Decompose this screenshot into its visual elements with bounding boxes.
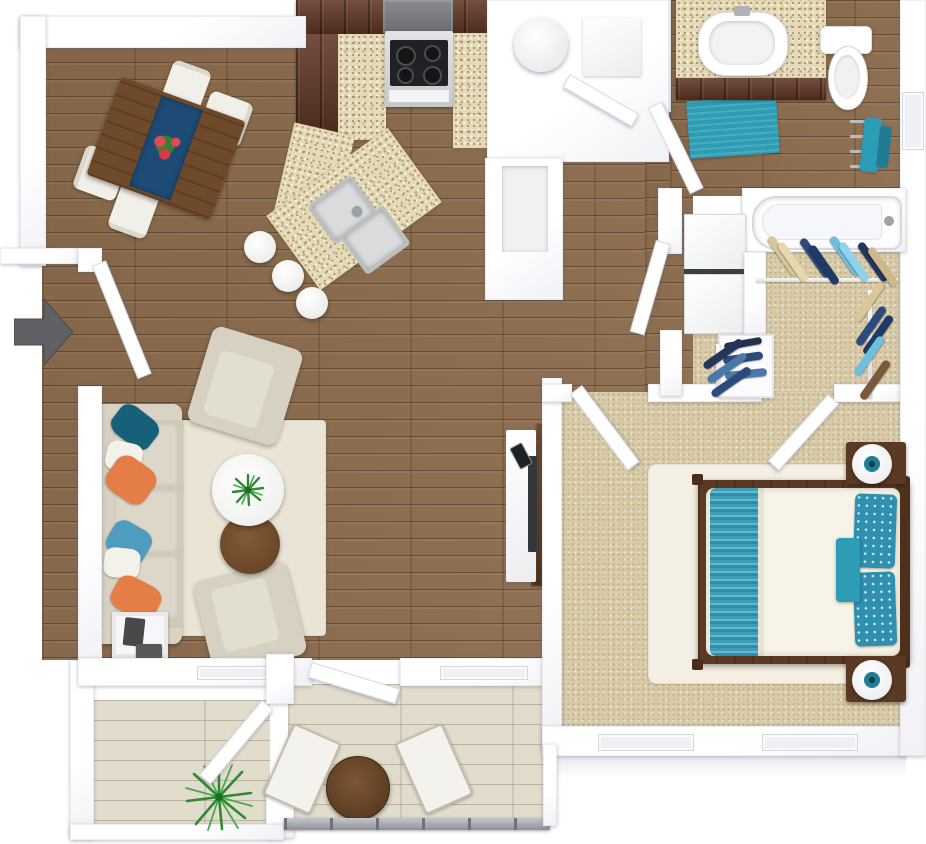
bathroom-vanity-cabinet <box>676 78 826 100</box>
wall-left-living <box>78 386 102 666</box>
oven-drawer <box>388 89 450 103</box>
vanity-sink <box>698 12 788 76</box>
table-lamp <box>852 444 892 484</box>
toilet-seat <box>834 55 860 99</box>
wall-left-dining <box>20 16 46 266</box>
teal-striped-runner <box>710 488 758 656</box>
duvet-fold <box>758 488 764 656</box>
toilet-bowl <box>828 46 868 110</box>
tub-faucet <box>884 216 894 226</box>
wall-laundry-lower <box>660 330 682 396</box>
wall-closet-left <box>744 252 766 334</box>
bathtub-basin <box>762 204 882 240</box>
wall-balcony-left <box>70 660 94 838</box>
kitchen-counter-right <box>453 33 489 148</box>
burner <box>424 45 441 62</box>
armchair-seat <box>210 577 280 653</box>
water-heater <box>514 18 568 72</box>
bed-post <box>692 474 703 485</box>
bedroom-wall-shadow <box>552 756 906 778</box>
accent-pillow <box>836 538 860 602</box>
table-lamp <box>852 660 892 700</box>
bed-post <box>692 659 703 670</box>
utility-panel <box>583 18 641 76</box>
balcony-window <box>440 666 528 680</box>
dryer <box>684 274 746 334</box>
sink-basin <box>709 21 775 65</box>
burner <box>397 67 414 84</box>
lamp-finial <box>869 677 875 683</box>
bar-stool <box>272 260 304 292</box>
bar-stool <box>244 231 276 263</box>
balcony-window <box>197 666 269 680</box>
wall-living-bedroom <box>542 378 562 748</box>
kitchen-counter-left <box>338 34 386 140</box>
island-faucet <box>352 206 362 216</box>
washer-dryer-seam <box>684 269 744 274</box>
cooktop <box>390 40 448 86</box>
bedroom-window <box>598 734 694 751</box>
entry-arrow <box>14 298 76 366</box>
pantry-closet <box>485 158 563 300</box>
floor-plan <box>0 0 926 844</box>
burner <box>396 46 416 66</box>
bathroom-side-window <box>902 92 924 150</box>
washer <box>684 214 746 274</box>
bar-stool <box>296 287 328 319</box>
pantry-recess <box>502 166 548 252</box>
armchair-seat <box>202 350 275 429</box>
wall-top <box>20 16 306 48</box>
glass-railing <box>284 818 550 830</box>
bistro-table <box>326 756 390 820</box>
wall-bedroom-top-a <box>542 384 572 402</box>
speaker <box>123 617 146 647</box>
kitchen-cabinet-arm <box>296 34 338 138</box>
stove-oven <box>385 31 453 107</box>
bedroom-window <box>762 734 858 751</box>
wall-balcony-right-column <box>543 744 557 826</box>
coffee-table-plant <box>229 471 267 509</box>
vanity-faucet <box>734 6 750 16</box>
burner <box>423 66 442 85</box>
tv <box>528 456 537 552</box>
throw-pillow-white <box>103 546 142 580</box>
bath-mat <box>686 95 780 159</box>
wall-storage-divider-upper <box>266 654 294 704</box>
closet-rod-top <box>756 278 898 282</box>
lamp-finial <box>869 461 875 467</box>
range-hood <box>383 0 453 33</box>
